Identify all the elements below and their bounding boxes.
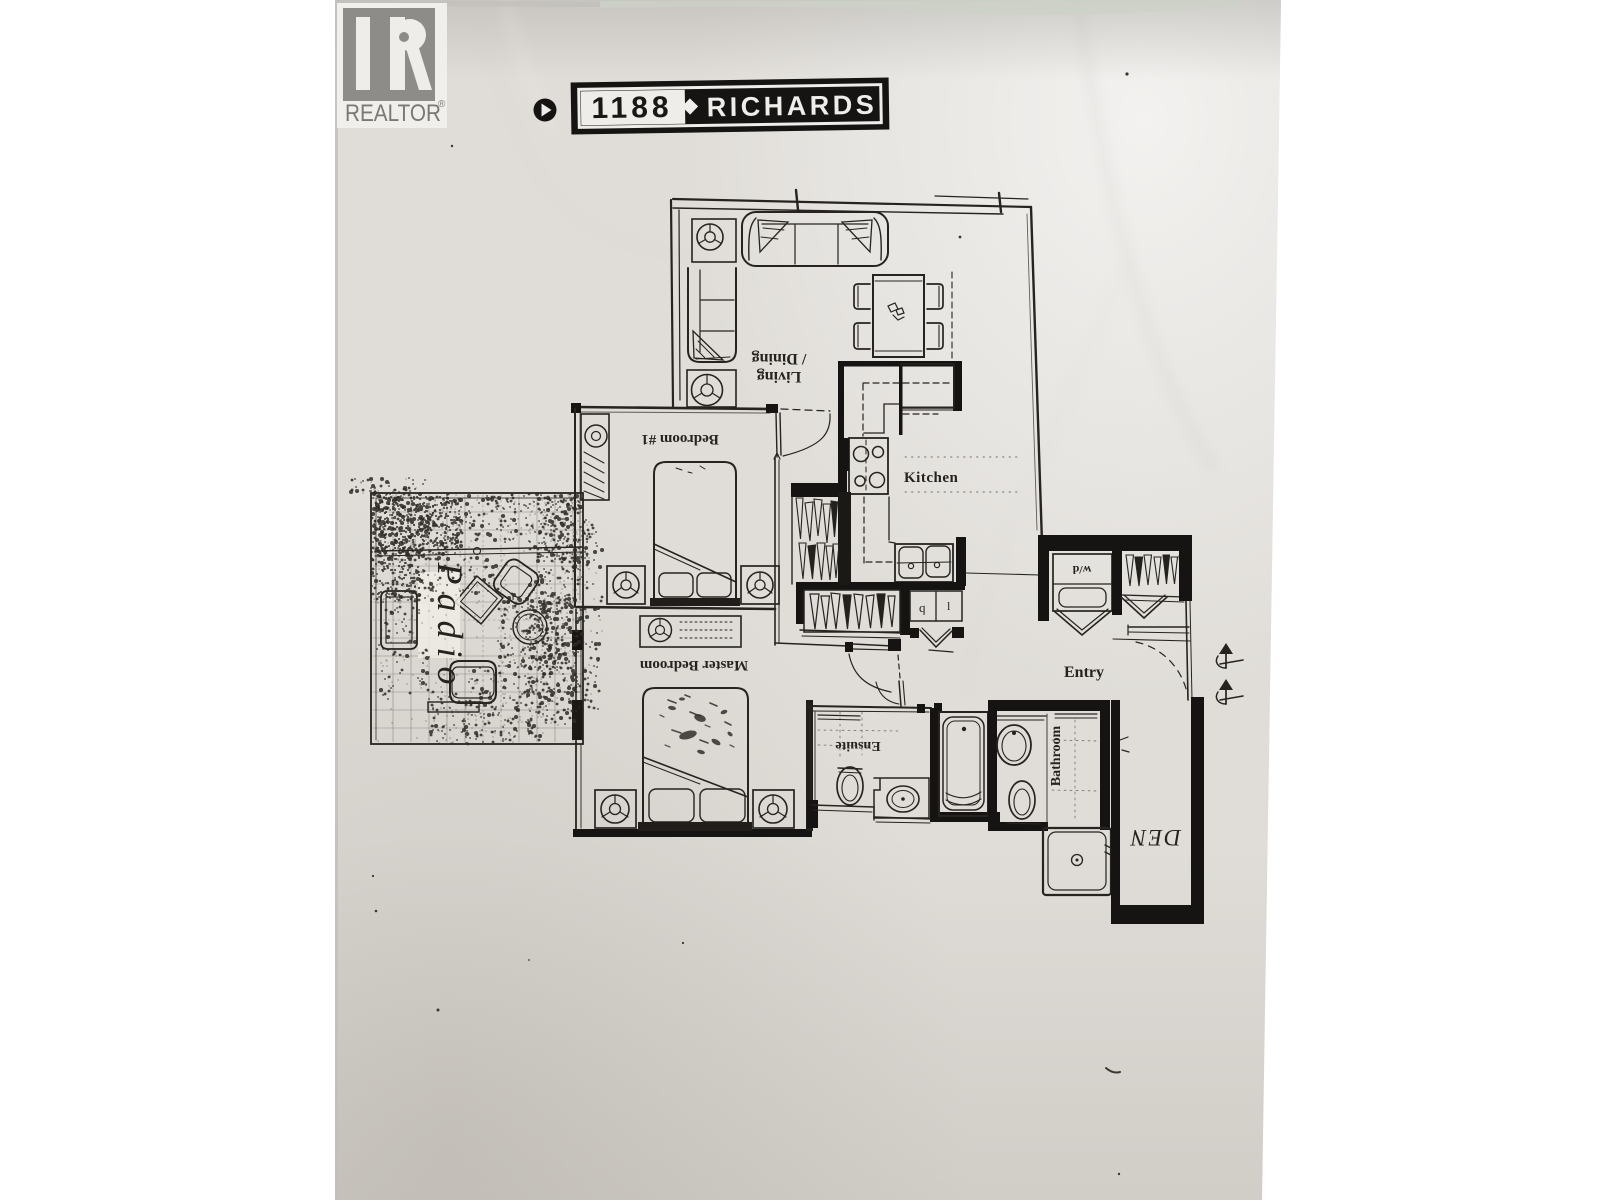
svg-text:1188: 1188 [591,91,673,125]
svg-text:®: ® [438,99,446,110]
svg-text:Kitchen: Kitchen [904,470,958,486]
svg-text:Padio: Padio [430,562,470,694]
svg-text:Bathroom: Bathroom [1049,725,1064,786]
svg-text:Living: Living [757,368,801,385]
svg-text:REALTOR: REALTOR [345,100,441,127]
svg-text:q: q [919,600,926,615]
svg-text:Bedroom #1: Bedroom #1 [641,431,719,447]
svg-text:Ensuite: Ensuite [835,738,880,753]
svg-text:RICHARDS: RICHARDS [707,90,878,123]
svg-text:/ Dining: / Dining [752,350,808,367]
svg-text:Master Bedroom: Master Bedroom [639,657,748,673]
svg-text:w/d: w/d [1072,563,1091,577]
svg-text:DEN: DEN [1129,825,1182,850]
svg-text:Entry: Entry [1064,664,1104,681]
